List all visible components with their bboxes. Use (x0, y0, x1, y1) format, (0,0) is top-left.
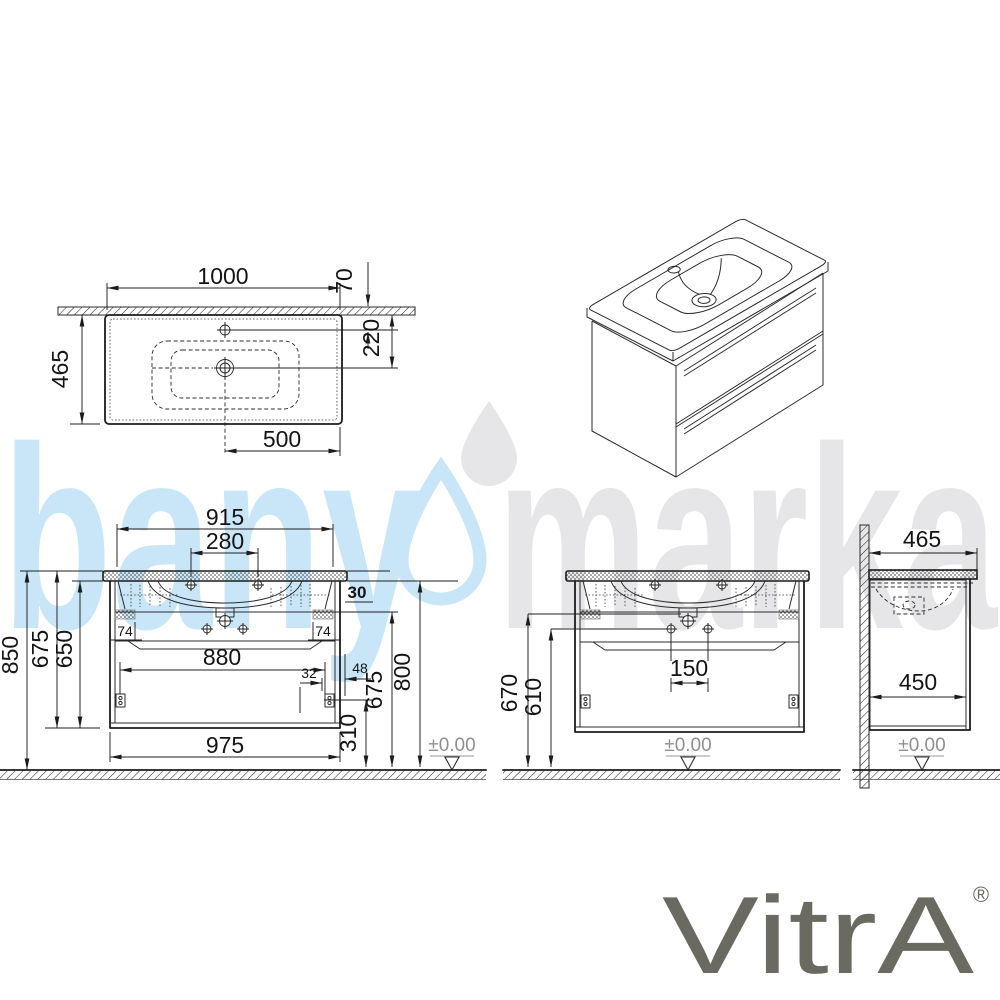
dim-front-top-width: 915 (206, 504, 244, 530)
mount-bracket-right (313, 610, 333, 619)
faucet-hole-cross (217, 322, 233, 338)
level-marker-front (445, 757, 459, 770)
technical-drawing-page: bany marka 1000 70 465 220 500 (0, 0, 1000, 1000)
dim-plan-drain-from-wall: 220 (358, 319, 384, 357)
level-marker-detail (681, 757, 695, 770)
wall-hatch-side (860, 525, 869, 788)
dim-front-rim-height: 800 (389, 653, 415, 691)
iso-countertop (587, 218, 828, 352)
countertop-section-2 (566, 571, 809, 581)
dim-front-inner-height: 650 (51, 630, 77, 668)
drawing-canvas: bany marka 1000 70 465 220 500 (0, 0, 1000, 1000)
countertop-section (103, 571, 347, 581)
dim-plan-drain-to-edge: 500 (263, 426, 301, 452)
floor-level-label-side: ±0.00 (898, 735, 945, 756)
brand-logo: VitrA ® (662, 874, 989, 997)
mount-bracket-left (115, 610, 135, 619)
dim-detail-drain-height: 670 (496, 674, 522, 712)
wall-hatch (58, 307, 415, 315)
dim-front-bottom-height: 310 (335, 714, 361, 752)
dim-front-right-height: 675 (361, 671, 387, 709)
dim-front-body-height: 675 (27, 630, 53, 668)
dim-plan-depth: 465 (47, 350, 73, 388)
dim-front-bracket-left: 74 (117, 623, 133, 639)
registered-mark: ® (973, 882, 989, 907)
floor-level-label-detail: ±0.00 (664, 735, 711, 756)
dim-front-body-width: 975 (206, 732, 244, 758)
dim-front-total-height: 850 (0, 636, 23, 674)
dim-plan-width: 1000 (197, 263, 248, 289)
dim-front-32: 32 (301, 665, 317, 681)
floor-level-label-front: ±0.00 (428, 735, 475, 756)
countertop-side (869, 570, 977, 579)
dim-front-top-thickness: 30 (348, 583, 367, 602)
level-marker-side (915, 757, 929, 770)
vitra-logo: VitrA (662, 874, 975, 997)
drain-cross (214, 357, 236, 379)
mount-bracket-left-2 (580, 610, 600, 619)
iso-faucet-hole (665, 265, 682, 274)
dim-front-bracket-right: 74 (315, 623, 331, 639)
mount-bracket-right-2 (779, 610, 799, 619)
dim-front-drawer-width: 880 (203, 644, 241, 670)
dim-detail-holes-spacing: 150 (670, 655, 708, 681)
dim-plan-back-offset: 70 (331, 268, 357, 294)
dim-detail-holes-height: 610 (520, 678, 546, 716)
dim-side-top-depth: 465 (903, 526, 941, 552)
dim-side-body-depth: 450 (899, 669, 937, 695)
dim-front-tap-holes: 280 (206, 528, 244, 554)
